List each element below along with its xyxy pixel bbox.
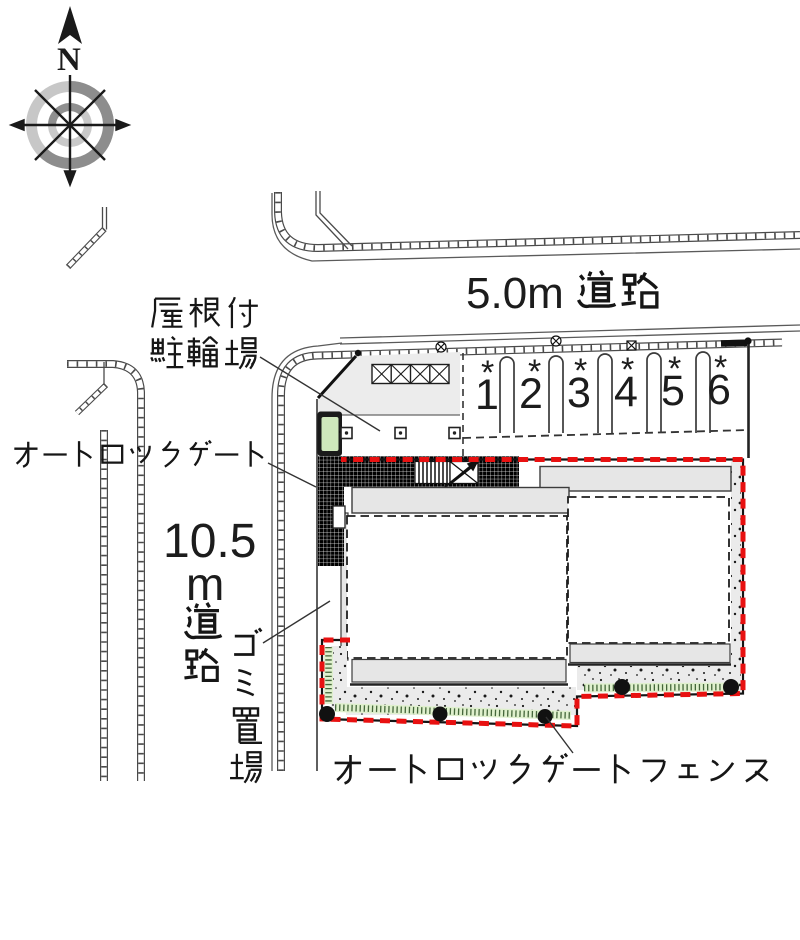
svg-text:5.0m: 5.0m <box>466 269 564 318</box>
svg-text:N: N <box>57 42 81 78</box>
svg-text:*: * <box>574 352 587 390</box>
svg-text:*: * <box>714 349 727 387</box>
svg-text:*: * <box>481 354 494 392</box>
svg-text:*: * <box>528 353 541 391</box>
svg-text:m: m <box>186 558 224 610</box>
svg-text:*: * <box>621 351 634 389</box>
svg-text:*: * <box>668 350 681 388</box>
